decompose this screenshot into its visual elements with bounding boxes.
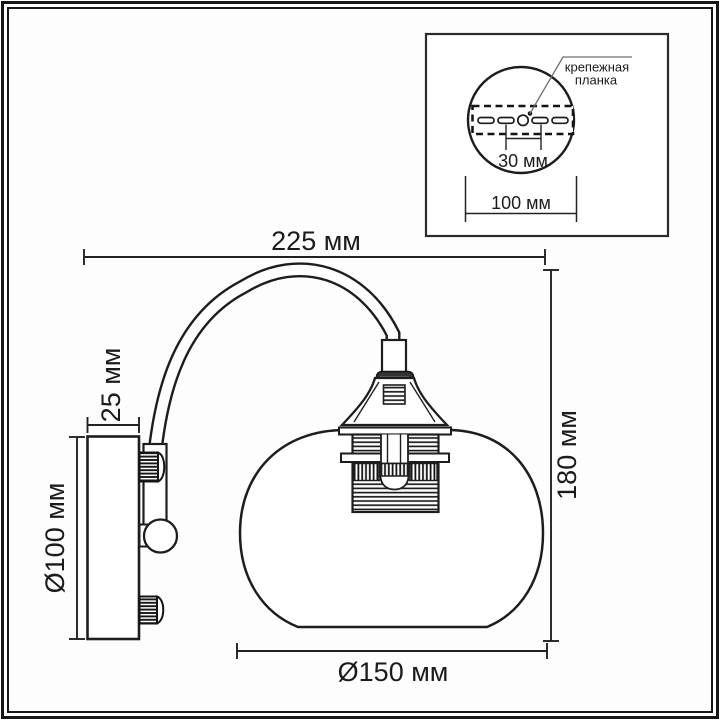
dim-overall-width-label: 225 мм — [271, 226, 361, 256]
mounting-screw-top — [140, 453, 165, 482]
mounting-screw-bottom — [140, 597, 164, 624]
socket-bell-cap — [342, 378, 447, 425]
technical-drawing-page: 225 мм 180 мм 25 мм Ø100 мм Ø150 мм — [0, 0, 720, 720]
dim-plate-diameter-label: Ø100 мм — [40, 483, 70, 594]
socket-assembly — [339, 372, 451, 513]
dim-plate-depth-label: 25 мм — [96, 348, 126, 423]
dim-shade-diameter-label: Ø150 мм — [338, 657, 449, 687]
sconce-drawing-canvas: 225 мм 180 мм 25 мм Ø100 мм Ø150 мм — [0, 0, 720, 720]
ball-joint — [140, 520, 178, 553]
mounting-detail-inset: крепежная планка 30 мм 100 мм — [426, 34, 668, 236]
dim-slot-spacing-label: 30 мм — [498, 151, 548, 171]
socket-knurl-right — [410, 464, 437, 481]
strap-label-line2: планка — [575, 73, 618, 88]
dim-overall-height-label: 180 мм — [552, 410, 582, 500]
arm-lamp-tube — [382, 340, 406, 375]
socket-stem-channel — [381, 435, 408, 464]
light-bulb — [381, 464, 409, 490]
dim-inset-plate-width-label: 100 мм — [491, 193, 551, 213]
wall-plate — [88, 437, 140, 640]
dimension-plate-diameter — [69, 437, 85, 639]
socket-knurl-left — [354, 464, 379, 481]
